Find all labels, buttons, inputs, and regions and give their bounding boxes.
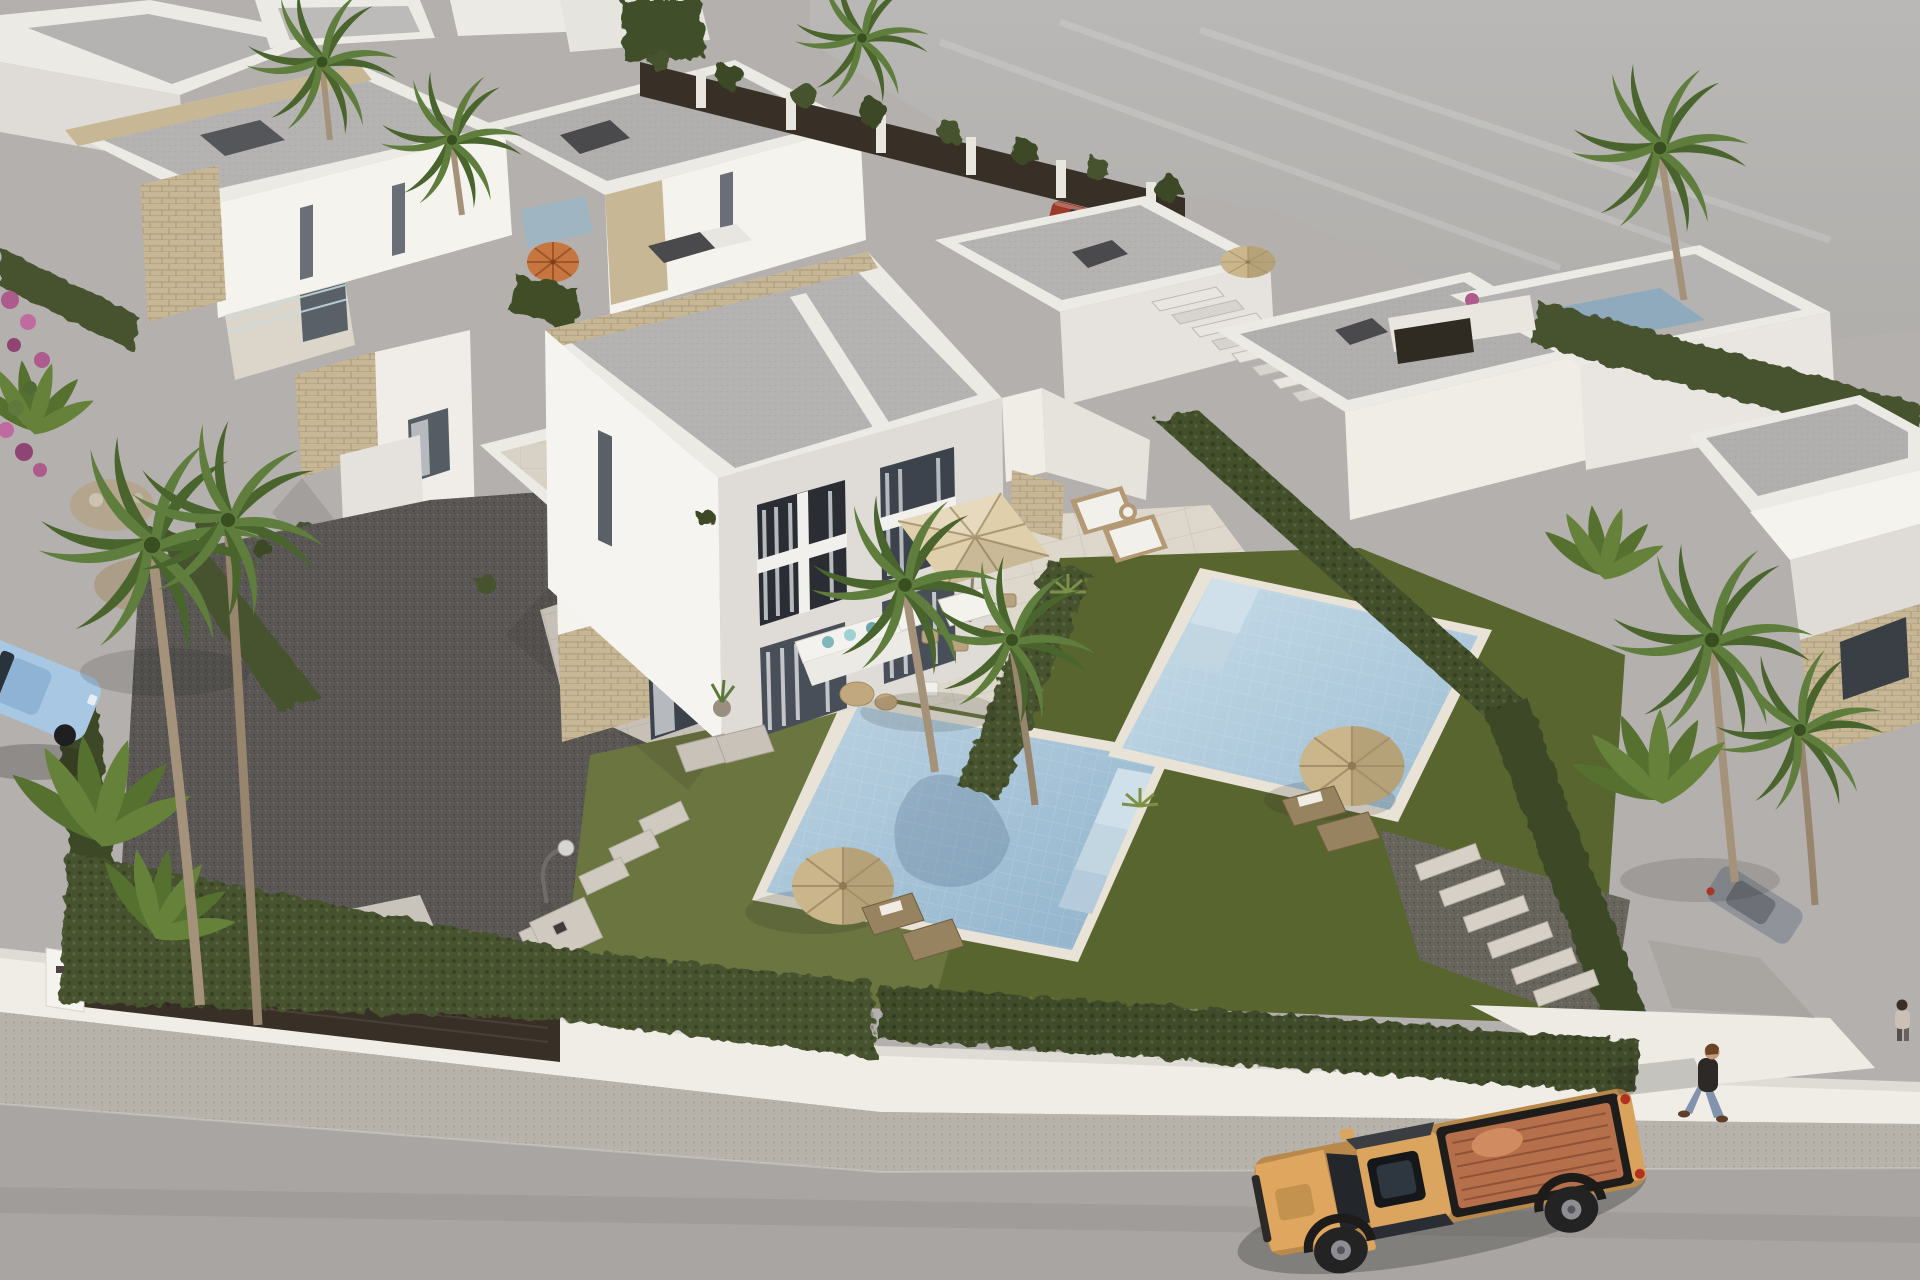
west-window-slit (598, 430, 612, 547)
shoe-front (1716, 1116, 1728, 1123)
render-canvas (0, 0, 1920, 1280)
villa-development-render (0, 0, 1920, 1280)
p2-head (1897, 1000, 1908, 1011)
villa-b-window-slit (300, 205, 313, 280)
right-wing-wall (1002, 388, 1046, 482)
p2-torso (1895, 1010, 1910, 1029)
villa-c-stone-band (605, 180, 668, 305)
torso (1698, 1058, 1718, 1092)
teal-cushion (822, 636, 834, 648)
lamp-head (558, 840, 574, 856)
orange-parasol (527, 242, 579, 282)
p2-leg (1897, 1028, 1902, 1041)
villa-b-stone-joints (140, 165, 226, 322)
lamp-base (540, 903, 554, 911)
bg-straw-parasol (1221, 246, 1276, 278)
mullion-v-left (797, 491, 810, 614)
shoe-back (1678, 1111, 1690, 1118)
teal-cushion-2 (844, 629, 856, 641)
cab-interior (1376, 1159, 1418, 1199)
hood-scoop (1274, 1183, 1315, 1221)
villa-b-window-slit-2 (392, 183, 405, 256)
p2-leg-2 (1904, 1028, 1909, 1041)
